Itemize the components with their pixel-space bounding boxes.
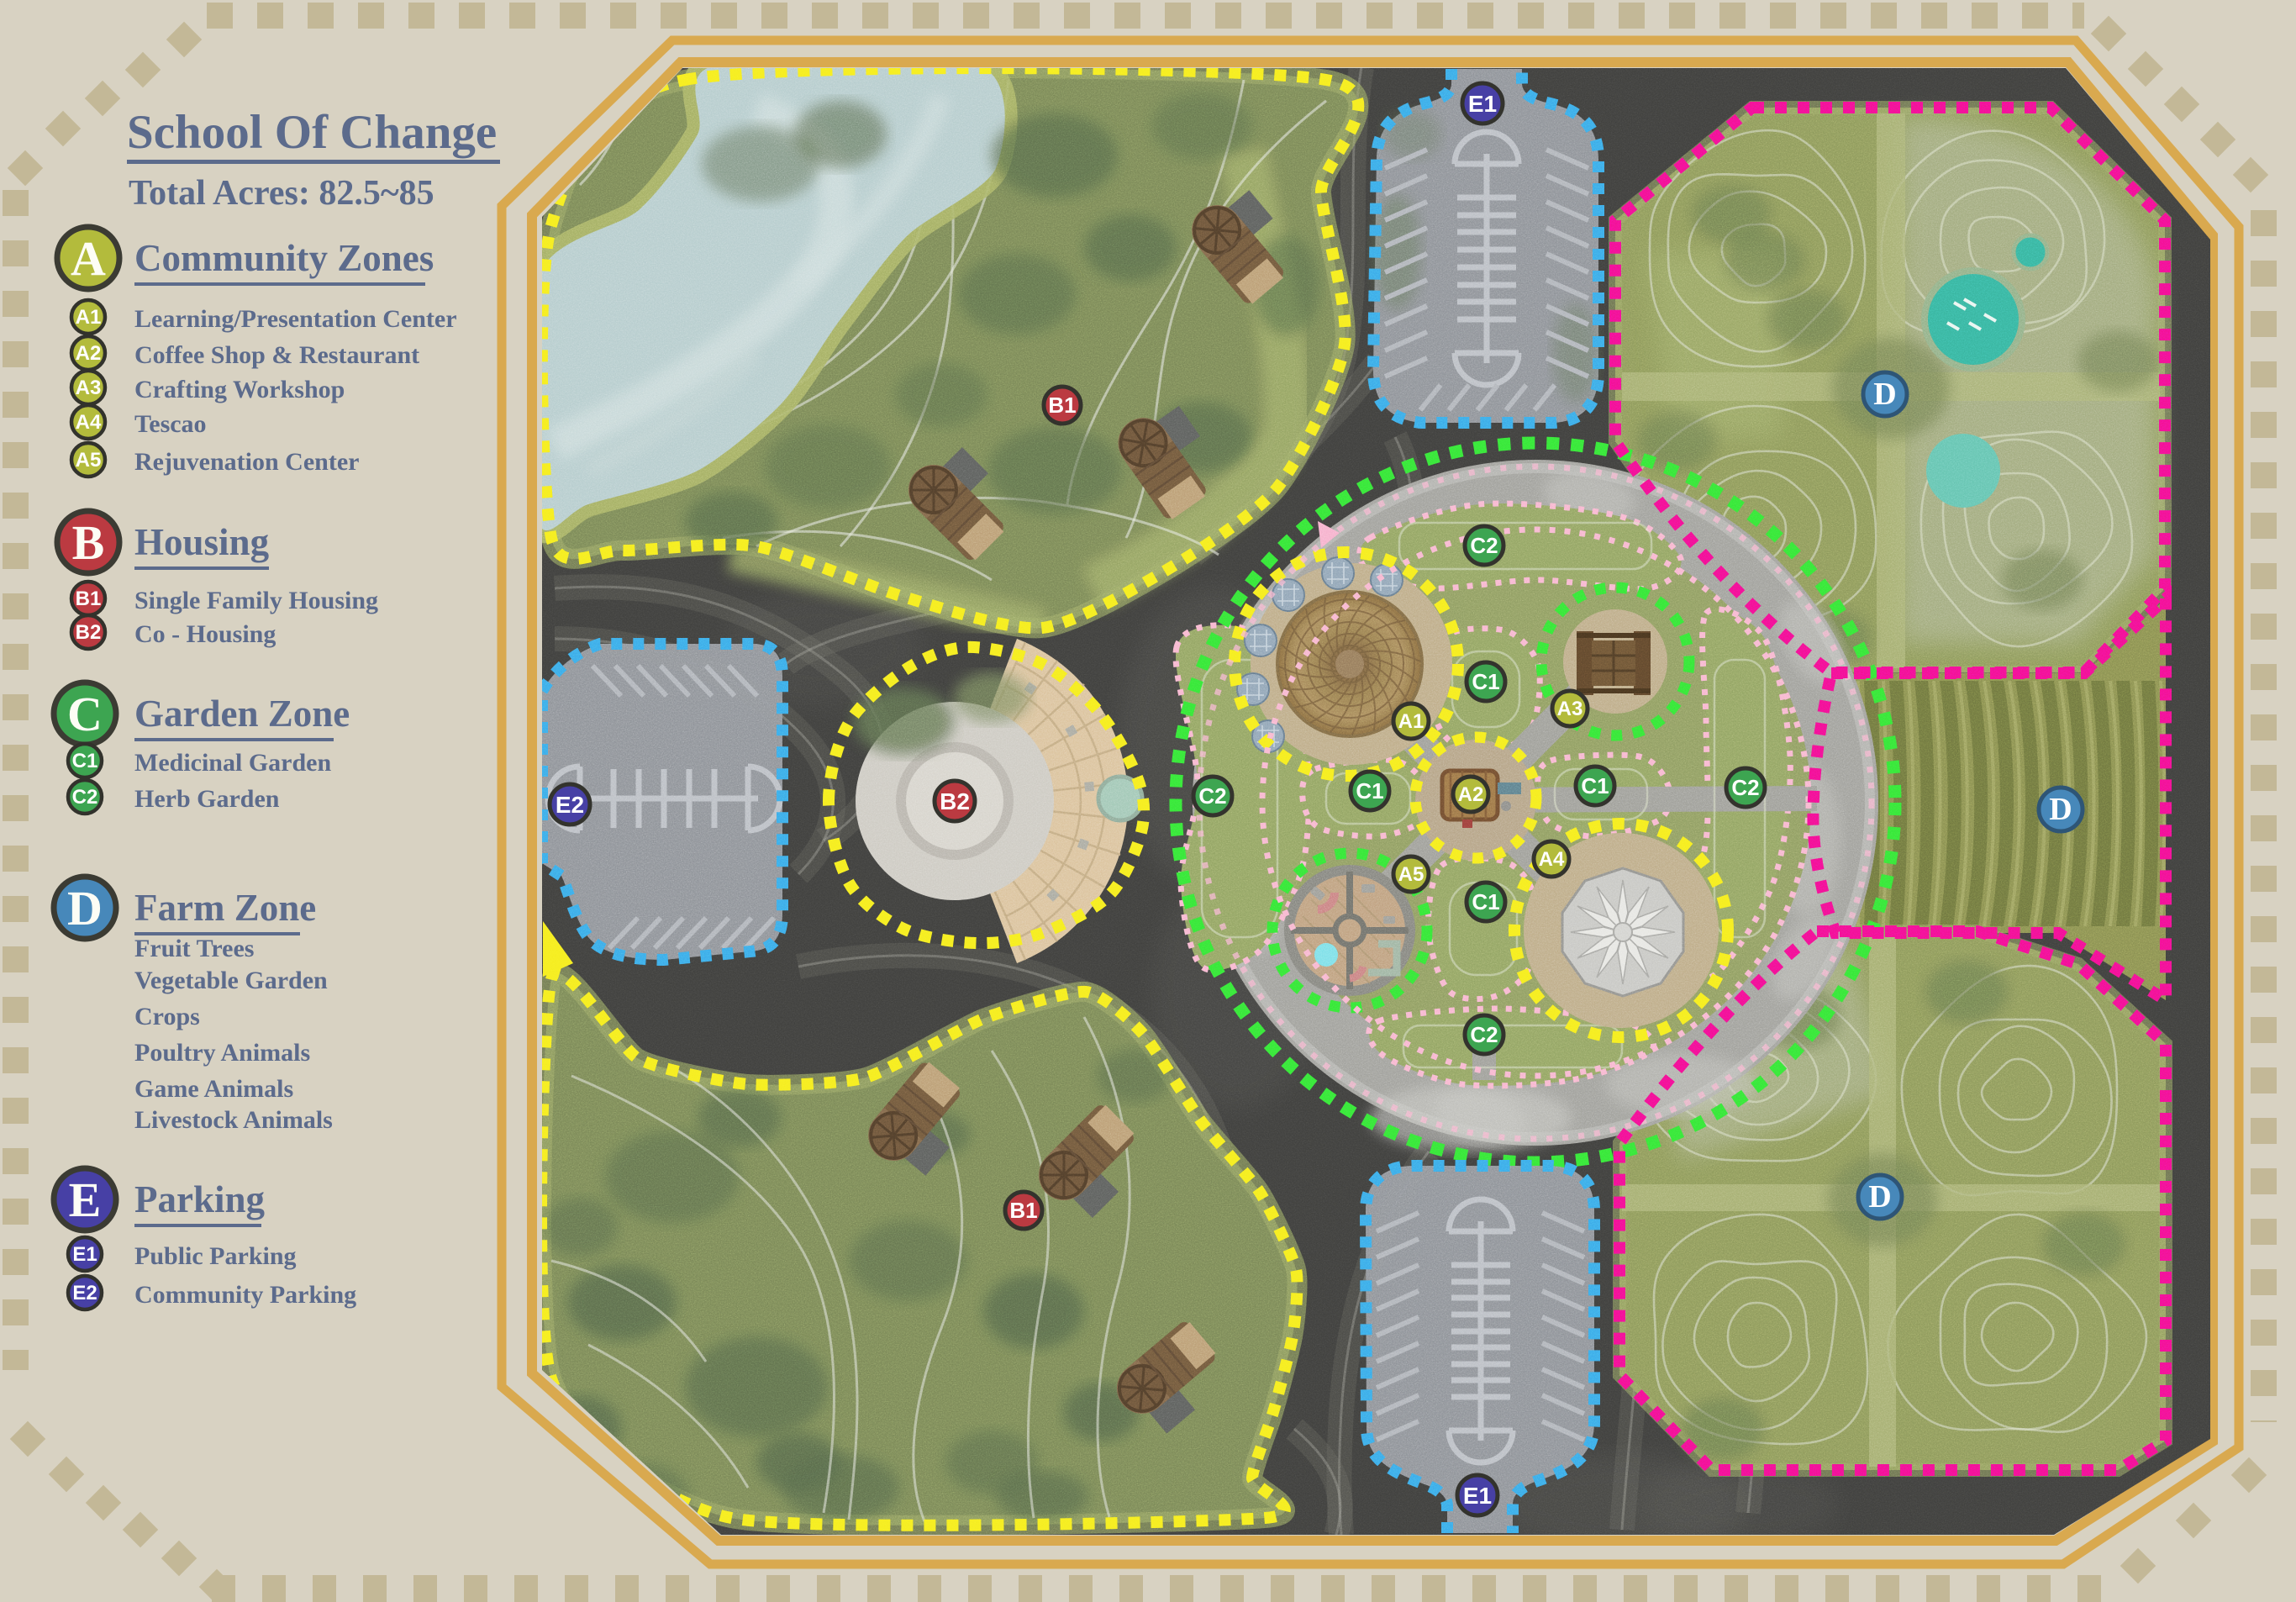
svg-text:Livestock Animals: Livestock Animals <box>134 1106 333 1134</box>
svg-text:Parking: Parking <box>134 1178 266 1220</box>
svg-text:Farm Zone: Farm Zone <box>134 887 316 929</box>
svg-text:C: C <box>67 687 103 741</box>
svg-text:Poultry Animals: Poultry Animals <box>134 1039 310 1067</box>
svg-text:E1: E1 <box>1468 91 1497 117</box>
svg-text:A5: A5 <box>76 449 102 472</box>
svg-text:A5: A5 <box>1398 863 1424 886</box>
svg-text:C1: C1 <box>1581 773 1609 798</box>
svg-text:C2: C2 <box>72 786 98 809</box>
svg-text:Public Parking: Public Parking <box>134 1242 297 1270</box>
svg-text:Fruit Trees: Fruit Trees <box>134 935 254 962</box>
svg-text:Tescao: Tescao <box>134 410 207 438</box>
svg-text:Co - Housing: Co - Housing <box>134 620 276 648</box>
svg-text:B2: B2 <box>940 788 970 814</box>
svg-text:Housing: Housing <box>134 521 270 563</box>
svg-text:C1: C1 <box>1472 669 1499 694</box>
svg-text:E2: E2 <box>556 792 584 818</box>
svg-text:A1: A1 <box>1398 710 1424 733</box>
svg-text:C2: C2 <box>1470 533 1498 558</box>
svg-text:B: B <box>72 515 105 570</box>
svg-text:C2: C2 <box>1198 783 1226 809</box>
svg-text:Coffee Shop & Restaurant: Coffee Shop & Restaurant <box>134 341 419 369</box>
svg-text:C2: C2 <box>1731 775 1759 800</box>
svg-text:A2: A2 <box>76 342 102 365</box>
svg-text:E: E <box>69 1173 102 1227</box>
svg-text:A4: A4 <box>1539 848 1565 871</box>
svg-text:Crafting Workshop: Crafting Workshop <box>134 376 345 403</box>
svg-text:Single Family Housing: Single Family Housing <box>134 587 378 614</box>
svg-text:A4: A4 <box>76 411 102 434</box>
svg-text:C1: C1 <box>72 750 98 772</box>
svg-text:Community Parking: Community Parking <box>134 1281 356 1309</box>
svg-text:D: D <box>67 881 103 935</box>
svg-text:E1: E1 <box>72 1243 97 1266</box>
svg-text:B1: B1 <box>1048 393 1076 418</box>
svg-text:C1: C1 <box>1356 778 1383 804</box>
svg-text:B1: B1 <box>76 588 102 610</box>
svg-text:Rejuvenation Center: Rejuvenation Center <box>134 448 359 476</box>
svg-text:C1: C1 <box>1472 889 1499 914</box>
svg-text:Game Animals: Game Animals <box>134 1075 293 1103</box>
svg-text:E1: E1 <box>1463 1483 1492 1509</box>
svg-text:D: D <box>1868 1179 1891 1215</box>
svg-text:A1: A1 <box>76 306 102 329</box>
svg-text:Vegetable Garden: Vegetable Garden <box>134 967 328 994</box>
svg-text:Garden Zone: Garden Zone <box>134 693 350 735</box>
svg-text:Total Acres: 82.5~85: Total Acres: 82.5~85 <box>129 174 434 213</box>
svg-text:D: D <box>2049 792 2072 827</box>
svg-text:E2: E2 <box>72 1282 97 1304</box>
svg-text:C2: C2 <box>1470 1022 1498 1047</box>
svg-text:A2: A2 <box>1458 783 1484 806</box>
svg-text:A3: A3 <box>76 377 102 399</box>
svg-text:B1: B1 <box>1009 1198 1037 1223</box>
svg-text:Crops: Crops <box>134 1003 200 1030</box>
svg-text:Learning/Presentation Center: Learning/Presentation Center <box>134 305 457 333</box>
svg-text:D: D <box>1873 377 1896 412</box>
svg-text:Herb Garden: Herb Garden <box>134 785 280 813</box>
svg-text:B2: B2 <box>76 621 102 644</box>
svg-text:Medicinal Garden: Medicinal Garden <box>134 749 331 777</box>
svg-text:School Of Change: School Of Change <box>127 106 497 159</box>
svg-text:A3: A3 <box>1557 698 1583 720</box>
svg-text:A: A <box>71 231 106 286</box>
svg-text:Community Zones: Community Zones <box>134 237 434 279</box>
